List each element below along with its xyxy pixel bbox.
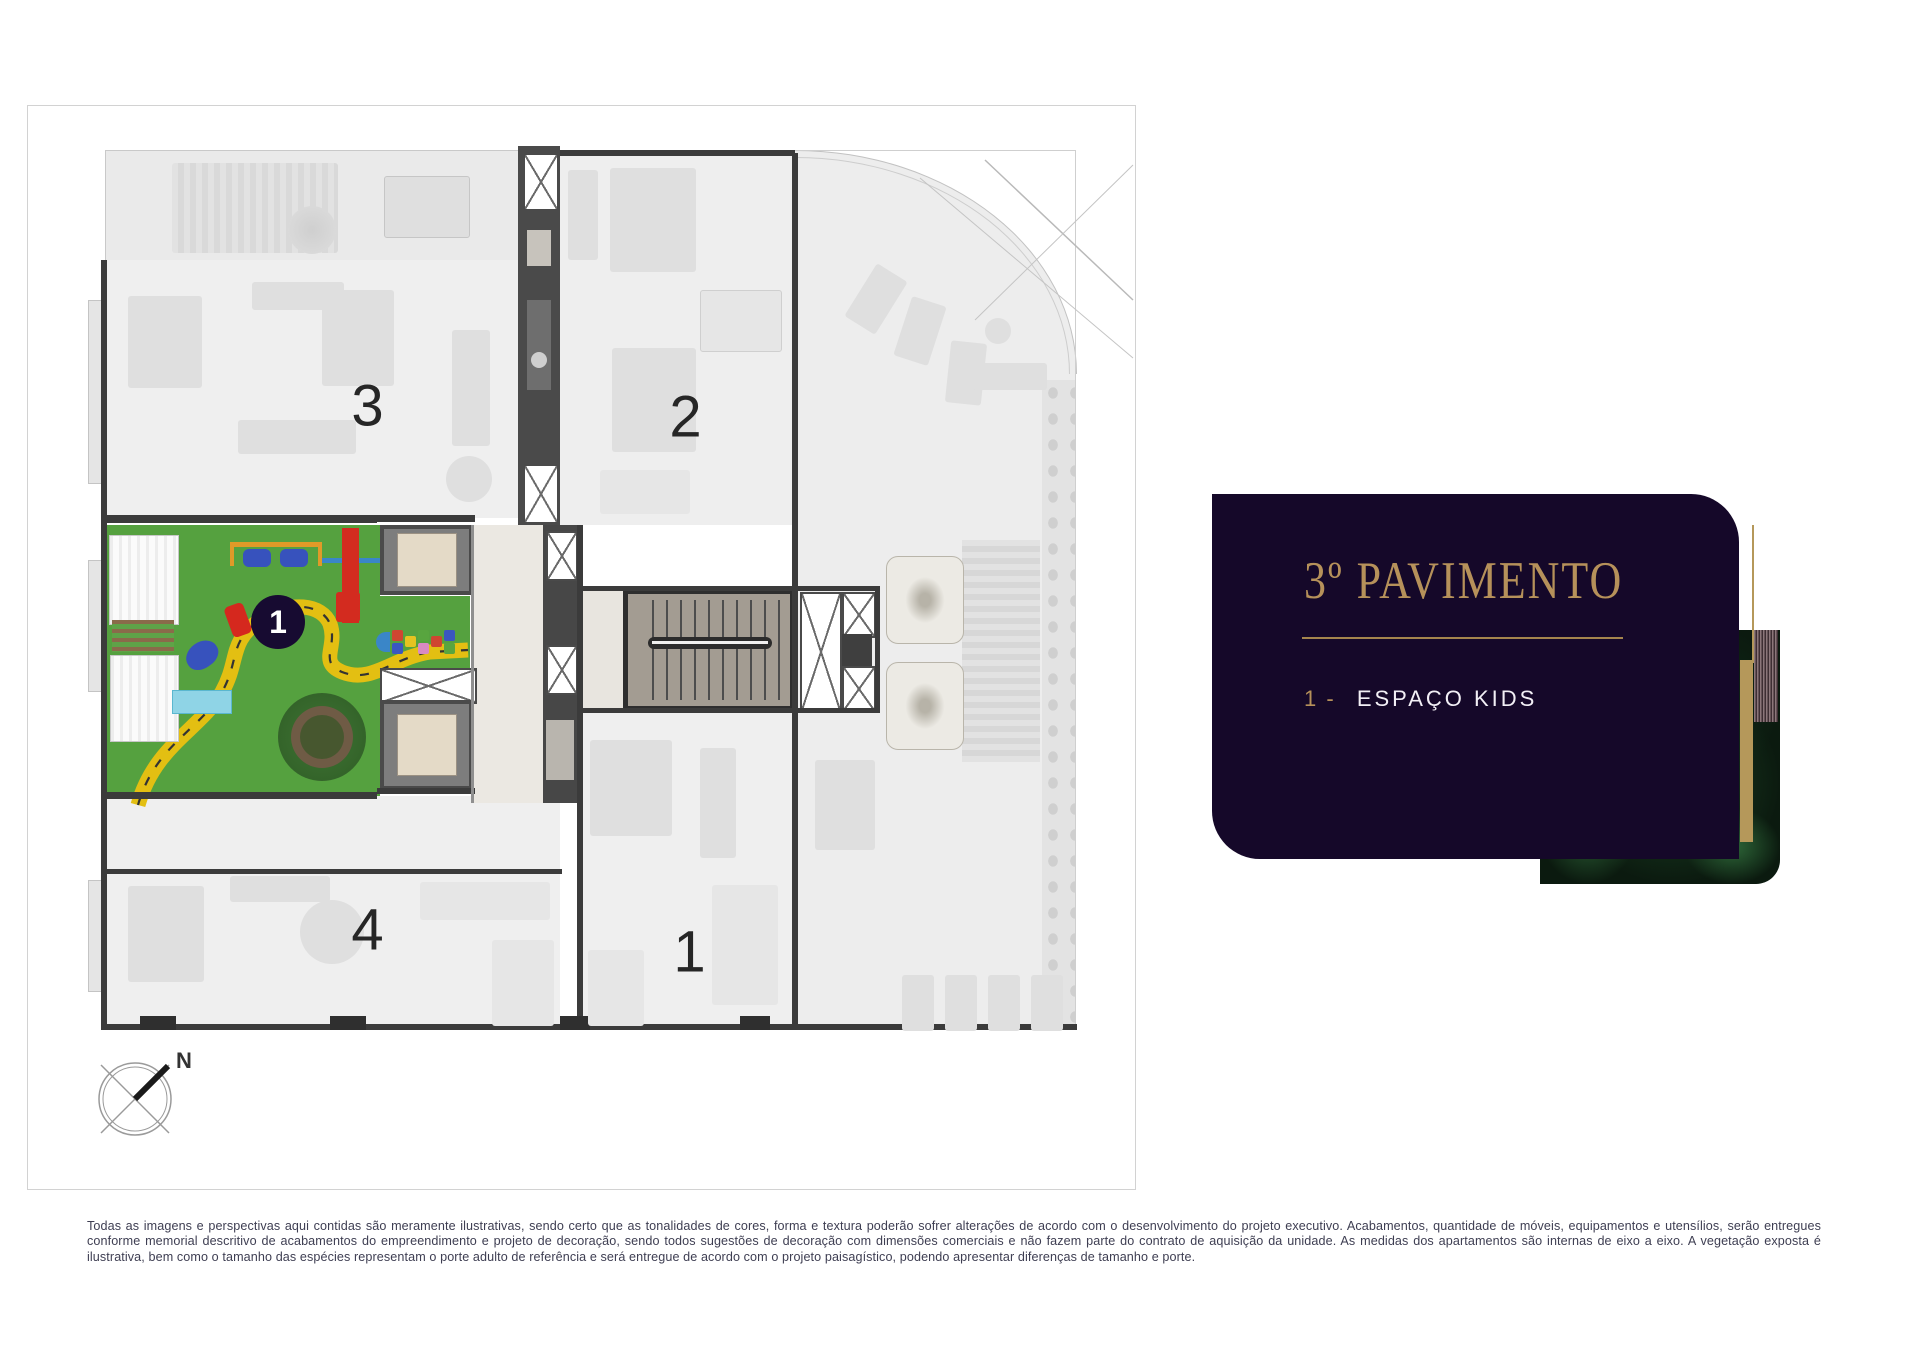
balcony-dining-table <box>384 176 470 238</box>
duct <box>546 720 574 780</box>
wall <box>792 153 798 1030</box>
gold-accent-line <box>1752 525 1754 663</box>
wall <box>577 525 583 1030</box>
elevator-shaft-x <box>800 592 842 712</box>
terrace-deck <box>962 540 1040 762</box>
unit-number-3: 3 <box>351 373 384 440</box>
terrace-lounger <box>902 975 934 1031</box>
elevator <box>380 525 473 595</box>
swing-bar <box>230 542 322 547</box>
furniture-sofa <box>700 748 736 858</box>
legend-label: ESPAÇO KIDS <box>1357 686 1538 711</box>
wall <box>377 788 475 794</box>
wall <box>105 792 377 799</box>
compass-north-label: N <box>176 1048 192 1073</box>
kids-slide-base <box>336 592 360 622</box>
stair-rail-slot <box>652 641 768 644</box>
wall-pillar <box>330 1016 366 1030</box>
terrace-table <box>985 318 1011 344</box>
wall <box>583 708 880 713</box>
hopscotch-tile <box>392 643 403 654</box>
legend-item-espaco-kids: 1 - ESPAÇO KIDS <box>1304 686 1537 712</box>
terrace-lounger <box>1031 975 1063 1031</box>
hopscotch-tile <box>431 636 442 647</box>
wall-pillar <box>740 1016 770 1030</box>
furniture-dining <box>712 885 778 1005</box>
hopscotch-tile <box>444 643 455 654</box>
corridor <box>473 525 543 803</box>
info-card: 3º PAVIMENTO 1 - ESPAÇO KIDS <box>1212 494 1739 859</box>
wall <box>101 260 107 1030</box>
planter <box>886 662 964 750</box>
shaft-x-box <box>523 153 559 211</box>
kids-bench <box>243 549 271 567</box>
wall <box>377 515 475 522</box>
kids-area-marker-label: 1 <box>269 604 287 641</box>
planter <box>886 556 964 644</box>
kitchen-counter <box>420 882 550 920</box>
furniture-rug <box>600 470 690 514</box>
bathroom <box>700 290 782 352</box>
hopscotch-tile <box>405 636 416 647</box>
unit-number-4: 4 <box>351 897 384 964</box>
kids-ladder <box>112 620 174 652</box>
kids-bench <box>280 549 308 567</box>
wall <box>560 150 795 156</box>
swing-post <box>230 542 234 566</box>
furniture-sofa <box>452 330 490 446</box>
photo-facade-strip <box>1740 660 1753 842</box>
furniture-bed <box>128 296 202 388</box>
terrace-lounger <box>945 975 977 1031</box>
card-title: 3º PAVIMENTO <box>1304 550 1623 611</box>
kids-area-marker: 1 <box>251 595 305 649</box>
shaft-x-box <box>523 464 559 524</box>
kitchen-counter <box>588 950 644 1026</box>
elevator-cab <box>397 533 457 587</box>
terrace-lounger <box>988 975 1020 1031</box>
wall <box>875 589 880 711</box>
legend-number: 1 - <box>1304 686 1336 711</box>
elevator <box>380 700 473 790</box>
furniture-dresser <box>238 420 356 454</box>
terrace-dining <box>815 760 875 850</box>
furniture-wardrobe <box>568 170 598 260</box>
furniture-bed <box>610 168 696 272</box>
compass-icon: N <box>80 1040 210 1160</box>
wall-pillar <box>560 1016 590 1030</box>
wall <box>105 515 377 523</box>
hopscotch-start <box>376 632 390 652</box>
stair-treads <box>640 600 780 700</box>
shaft-x-box <box>842 666 876 712</box>
furniture-wardrobe <box>230 876 330 902</box>
hopscotch-tile <box>418 630 429 641</box>
duct <box>527 230 551 266</box>
shaft-x-box <box>546 531 578 581</box>
disclaimer-text: Todas as imagens e perspectivas aqui con… <box>87 1219 1821 1267</box>
wall-pillar <box>140 1016 176 1030</box>
furniture-table <box>446 456 492 502</box>
balcony-tree <box>288 206 336 254</box>
wall <box>471 525 474 803</box>
wall <box>105 869 562 874</box>
elevator-x-box <box>380 668 477 704</box>
tree-center <box>300 715 344 759</box>
terrace-planter-bed <box>973 363 1047 390</box>
duct-fan <box>531 352 547 368</box>
kitchen-counter <box>492 940 554 1026</box>
unit-number-2: 2 <box>669 384 702 451</box>
kids-pergola <box>109 535 179 625</box>
wall <box>583 586 880 591</box>
hopscotch-tile <box>444 630 455 641</box>
card-divider <box>1302 637 1623 639</box>
elevator-cab <box>397 714 457 776</box>
hopscotch-tile <box>392 630 403 641</box>
kids-pergola <box>110 655 179 742</box>
page: 3 2 4 1 1 N 3º PAVIMENTO 1 - ESPAÇO KIDS <box>0 0 1920 1357</box>
photo-louver-panel <box>1754 630 1778 722</box>
furniture-bed <box>590 740 672 836</box>
shaft-x-box <box>842 592 876 638</box>
unit-number-1: 1 <box>673 919 706 986</box>
hopscotch-tile <box>418 643 429 654</box>
stair-landing <box>583 589 623 711</box>
terrace-hedge <box>1042 380 1075 1025</box>
shaft-x-box <box>546 645 578 695</box>
duct <box>842 634 872 666</box>
duct <box>527 300 551 390</box>
kids-sandbox <box>172 690 232 714</box>
furniture-bed <box>128 886 204 982</box>
